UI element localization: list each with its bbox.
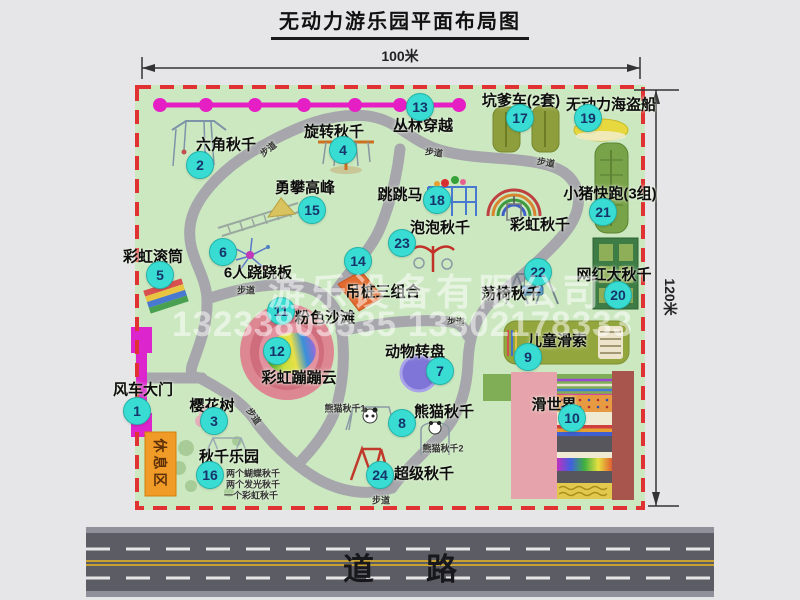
attraction-marker-17: 17 xyxy=(506,104,534,132)
attraction-marker-15: 15 xyxy=(298,196,326,224)
attraction-marker-6: 6 xyxy=(209,238,237,266)
attraction-label-12: 彩虹蹦蹦云 xyxy=(261,367,336,388)
path-label: 步道 xyxy=(372,494,390,507)
dimension-right-label: 120米 xyxy=(660,278,680,315)
attraction-marker-21: 21 xyxy=(589,198,617,226)
attraction-marker-19: 19 xyxy=(574,104,602,132)
attraction-marker-4: 4 xyxy=(329,136,357,164)
rest-area-label: 休息区 xyxy=(150,439,170,490)
page-title: 无动力游乐园平面布局图 xyxy=(0,5,800,40)
sub-label-5: 一个彩虹秋千 xyxy=(224,489,278,502)
attraction-marker-7: 7 xyxy=(426,357,454,385)
attraction-label-23: 泡泡秋千 xyxy=(410,217,470,238)
attraction-marker-2: 2 xyxy=(186,151,214,179)
attraction-marker-5: 5 xyxy=(146,261,174,289)
attraction-marker-8: 8 xyxy=(388,409,416,437)
dimension-top-label: 100米 xyxy=(0,46,800,66)
attraction-marker-13: 13 xyxy=(406,93,434,121)
attraction-marker-23: 23 xyxy=(388,229,416,257)
playground-layout-map: 无动力游乐园平面布局图 100米 120米 休息区 风车大门1六角秋千2樱花树3… xyxy=(0,0,800,600)
path-label: 步道 xyxy=(424,144,444,159)
attraction-label-18: 跳跳马 xyxy=(377,184,422,205)
sub-label-1: 熊猫秋千1 xyxy=(324,402,365,415)
attraction-marker-16: 16 xyxy=(196,461,224,489)
sub-label-0: 彩虹秋千 xyxy=(510,214,570,235)
attraction-marker-3: 3 xyxy=(200,407,228,435)
attraction-label-1: 风车大门 xyxy=(113,379,173,400)
path-label: 步道 xyxy=(237,284,255,297)
attraction-marker-18: 18 xyxy=(423,186,451,214)
watermark-phone: 13233805535 13302178333 xyxy=(172,305,633,345)
attraction-marker-24: 24 xyxy=(366,461,394,489)
attraction-marker-10: 10 xyxy=(558,404,586,432)
attraction-label-24: 超级秋千 xyxy=(394,463,454,484)
sub-label-2: 熊猫秋千2 xyxy=(422,442,463,455)
road-label: 道路 xyxy=(0,544,800,589)
attraction-label-15: 勇攀高峰 xyxy=(275,177,335,198)
attraction-marker-1: 1 xyxy=(123,397,151,425)
attraction-label-8: 熊猫秋千 xyxy=(414,401,474,422)
attraction-marker-9: 9 xyxy=(514,343,542,371)
